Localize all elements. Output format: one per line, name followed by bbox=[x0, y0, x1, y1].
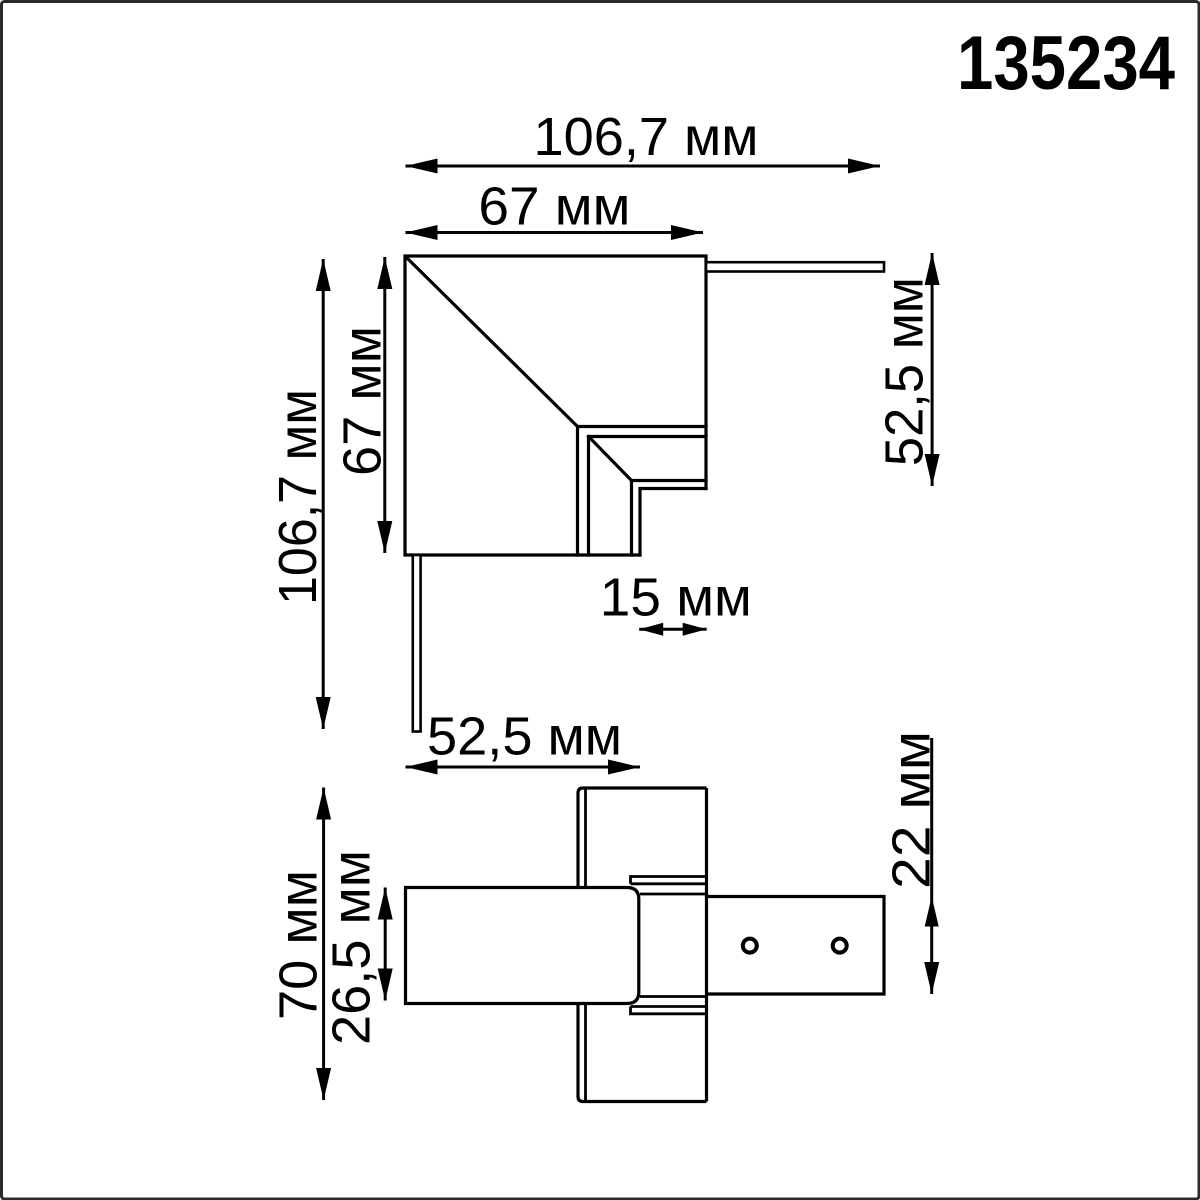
svg-text:52,5 мм: 52,5 мм bbox=[427, 707, 622, 767]
svg-text:67 мм: 67 мм bbox=[478, 177, 630, 237]
svg-text:70 мм: 70 мм bbox=[268, 870, 328, 1020]
svg-text:106,7 мм: 106,7 мм bbox=[534, 107, 759, 167]
svg-text:52,5 мм: 52,5 мм bbox=[875, 277, 935, 466]
svg-text:106,7 мм: 106,7 мм bbox=[268, 389, 328, 605]
svg-text:22 мм: 22 мм bbox=[881, 731, 941, 889]
svg-text:15 мм: 15 мм bbox=[600, 568, 752, 628]
svg-text:26,5 мм: 26,5 мм bbox=[322, 850, 382, 1045]
svg-text:135234: 135234 bbox=[957, 21, 1175, 106]
svg-text:67 мм: 67 мм bbox=[332, 326, 392, 476]
